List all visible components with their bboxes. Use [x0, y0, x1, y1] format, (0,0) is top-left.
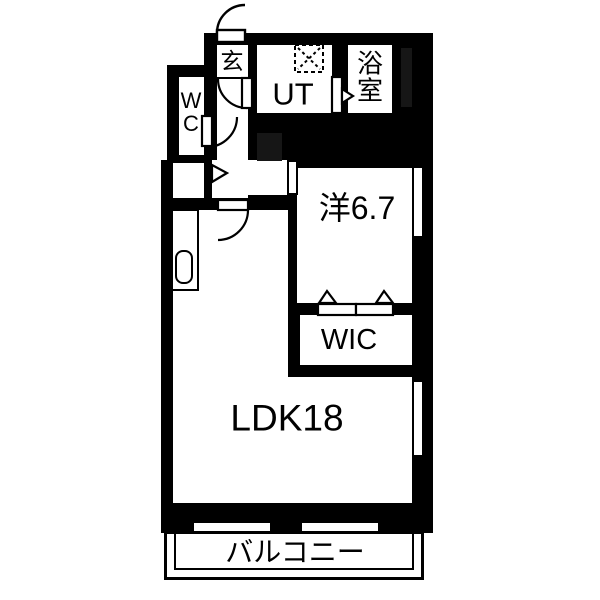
hall-door-leaf [242, 78, 252, 108]
floorplan: 玄 UT 浴 室 W C 洋6.7 WIC LDK18 バルコニー [0, 0, 600, 600]
wic-triangle-right [376, 291, 393, 303]
bath-door-triangle [342, 89, 353, 103]
label-bathroom: 浴 室 [357, 51, 383, 106]
label-ldk: LDK18 [230, 400, 343, 439]
label-wc: W C [181, 89, 202, 135]
ldk-door-arc [218, 210, 248, 240]
bath-door-leaf [332, 77, 342, 113]
wc-door-leaf [202, 116, 212, 146]
wic-triangle-left [319, 291, 336, 303]
label-ut: UT [272, 79, 313, 112]
label-western: 洋6.7 [319, 192, 396, 226]
entrance-door-leaf [217, 30, 245, 42]
storage-door-triangle [212, 165, 227, 182]
western-door-opening [288, 161, 297, 194]
entrance-door-arc [217, 5, 245, 33]
wic-sliding-panel-right [356, 304, 393, 315]
label-balcony: バルコニー [225, 537, 364, 566]
wic-sliding-panel-left [318, 304, 356, 315]
ldk-door-leaf [218, 200, 248, 210]
label-genkan: 玄 [221, 49, 244, 73]
label-wic: WIC [321, 325, 377, 355]
